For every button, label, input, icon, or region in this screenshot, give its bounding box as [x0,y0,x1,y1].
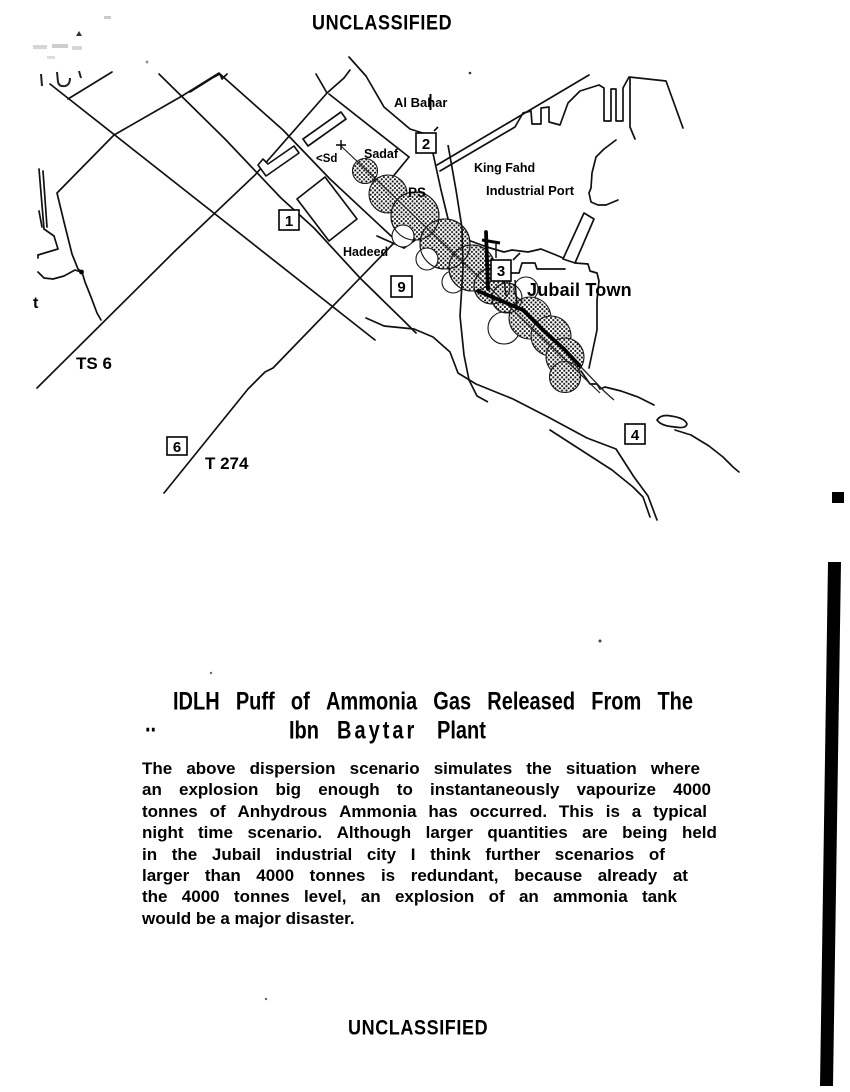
svg-text:Industrial Port: Industrial Port [486,183,575,198]
svg-text:TS 6: TS 6 [76,354,112,373]
svg-text:1: 1 [285,213,293,230]
svg-text:4: 4 [631,427,640,444]
svg-text:9: 9 [397,279,405,296]
svg-text:T 274: T 274 [205,454,249,473]
svg-text:t: t [33,295,39,312]
svg-text:<Sd: <Sd [316,153,337,165]
svg-text:3: 3 [497,263,505,280]
svg-text:PS: PS [408,185,426,200]
svg-text:6: 6 [173,439,181,456]
svg-text:King Fahd: King Fahd [474,161,535,175]
svg-text:Hadeed: Hadeed [343,245,388,259]
svg-text:2: 2 [422,136,430,153]
svg-text:Sadaf: Sadaf [364,147,399,161]
svg-text:Jubail Town: Jubail Town [527,280,632,300]
svg-text:Al Bahar: Al Bahar [394,95,447,110]
